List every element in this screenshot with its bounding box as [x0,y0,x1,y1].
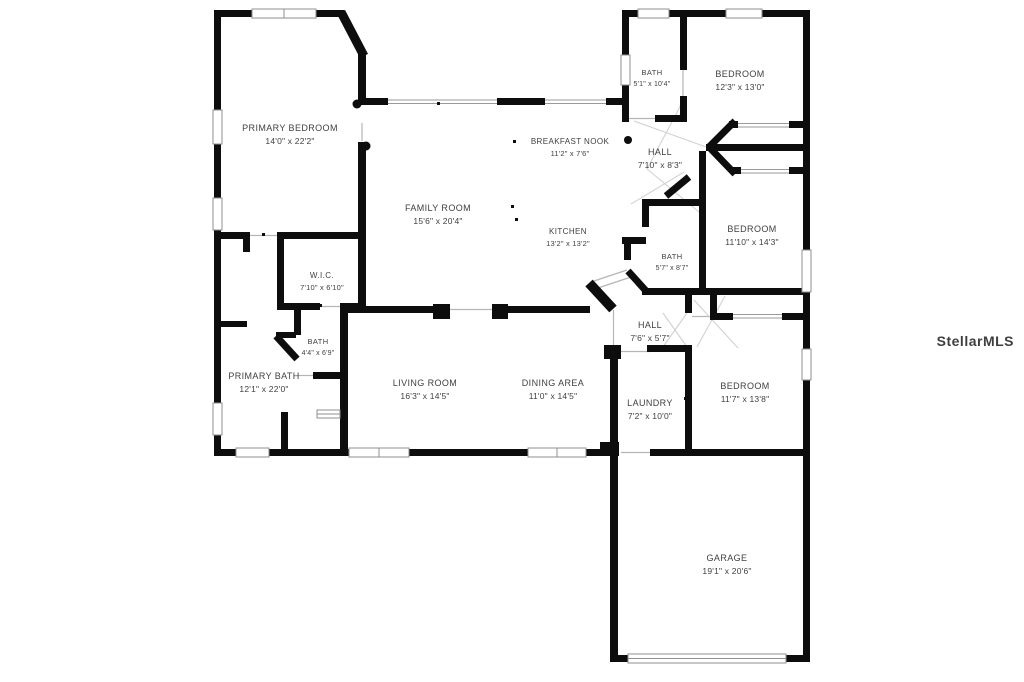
room-label-dining-area: DINING AREA 11'0" x 14'5" [522,378,584,401]
svg-text:7'6" x 5'7": 7'6" x 5'7" [630,333,669,343]
svg-text:FAMILY ROOM: FAMILY ROOM [405,203,471,213]
room-label-laundry: LAUNDRY 7'2" x 10'0" [627,398,673,421]
svg-text:4'4" x 6'9": 4'4" x 6'9" [302,350,335,357]
svg-text:13'2" x 13'2": 13'2" x 13'2" [546,239,590,248]
svg-text:W.I.C.: W.I.C. [310,271,334,280]
svg-text:7'10" x 6'10": 7'10" x 6'10" [300,283,344,292]
svg-text:HALL: HALL [638,320,662,330]
svg-text:11'7" x 13'8": 11'7" x 13'8" [721,394,770,404]
svg-text:11'2" x 7'6": 11'2" x 7'6" [551,149,590,158]
mls-watermark: StellarMLS [937,333,1014,349]
svg-text:PRIMARY BEDROOM: PRIMARY BEDROOM [242,123,338,133]
room-label-garage: GARAGE 19'1" x 20'6" [702,553,751,576]
svg-text:5'1" x 10'4": 5'1" x 10'4" [634,81,671,88]
svg-text:DINING AREA: DINING AREA [522,378,584,388]
room-label-family-room: FAMILY ROOM 15'6" x 20'4" [405,203,471,226]
room-label-wic: W.I.C. 7'10" x 6'10" [300,271,344,292]
svg-text:5'7" x 8'7": 5'7" x 8'7" [656,265,689,272]
svg-text:12'1" x 22'0": 12'1" x 22'0" [239,384,288,394]
svg-text:BATH: BATH [641,68,662,77]
room-label-primary-bedroom: PRIMARY BEDROOM 14'0" x 22'2" [242,123,338,146]
room-labels-layer: PRIMARY BEDROOM 14'0" x 22'2" FAMILY ROO… [228,68,778,576]
room-label-bedroom-ne: BEDROOM 12'3" x 13'0" [715,69,764,92]
svg-text:16'3" x 14'5": 16'3" x 14'5" [400,391,449,401]
svg-text:BATH: BATH [661,252,682,261]
floor-plan-drawing: PRIMARY BEDROOM 14'0" x 22'2" FAMILY ROO… [0,0,1024,682]
svg-text:11'0" x 14'5": 11'0" x 14'5" [529,391,578,401]
svg-text:LIVING ROOM: LIVING ROOM [393,378,457,388]
svg-text:BEDROOM: BEDROOM [727,224,776,234]
svg-text:7'10" x 8'3": 7'10" x 8'3" [638,160,682,170]
svg-text:BREAKFAST NOOK: BREAKFAST NOOK [531,137,610,146]
room-label-bedroom-se: BEDROOM 11'7" x 13'8" [720,381,769,404]
walls-layer [214,10,810,662]
room-label-kitchen: KITCHEN 13'2" x 13'2" [546,227,590,248]
windows-layer [213,9,811,663]
room-label-bath-small: BATH 4'4" x 6'9" [302,337,335,357]
svg-text:14'0" x 22'2": 14'0" x 22'2" [265,136,314,146]
room-label-bedroom-e: BEDROOM 11'10" x 14'3" [725,224,779,247]
room-label-living-room: LIVING ROOM 16'3" x 14'5" [393,378,457,401]
svg-text:PRIMARY BATH: PRIMARY BATH [228,371,299,381]
svg-text:KITCHEN: KITCHEN [549,227,587,236]
svg-text:12'3" x 13'0": 12'3" x 13'0" [715,82,764,92]
room-label-breakfast-nook: BREAKFAST NOOK 11'2" x 7'6" [531,137,610,158]
svg-text:GARAGE: GARAGE [707,553,748,563]
svg-text:11'10" x 14'3": 11'10" x 14'3" [725,237,779,247]
room-label-hall-upper: HALL 7'10" x 8'3" [638,147,682,170]
svg-text:BEDROOM: BEDROOM [720,381,769,391]
floor-plan-page: PRIMARY BEDROOM 14'0" x 22'2" FAMILY ROO… [0,0,1024,682]
svg-text:LAUNDRY: LAUNDRY [627,398,673,408]
svg-text:15'6" x 20'4": 15'6" x 20'4" [413,216,462,226]
svg-text:7'2" x 10'0": 7'2" x 10'0" [628,411,672,421]
svg-text:19'1" x 20'6": 19'1" x 20'6" [702,566,751,576]
svg-text:HALL: HALL [648,147,672,157]
svg-text:BATH: BATH [307,337,328,346]
room-label-bath-middle: BATH 5'7" x 8'7" [656,252,689,272]
room-label-primary-bath: PRIMARY BATH 12'1" x 22'0" [228,371,299,394]
room-label-bath-upper: BATH 5'1" x 10'4" [634,68,671,88]
room-label-hall-lower: HALL 7'6" x 5'7" [630,320,669,343]
svg-text:BEDROOM: BEDROOM [715,69,764,79]
